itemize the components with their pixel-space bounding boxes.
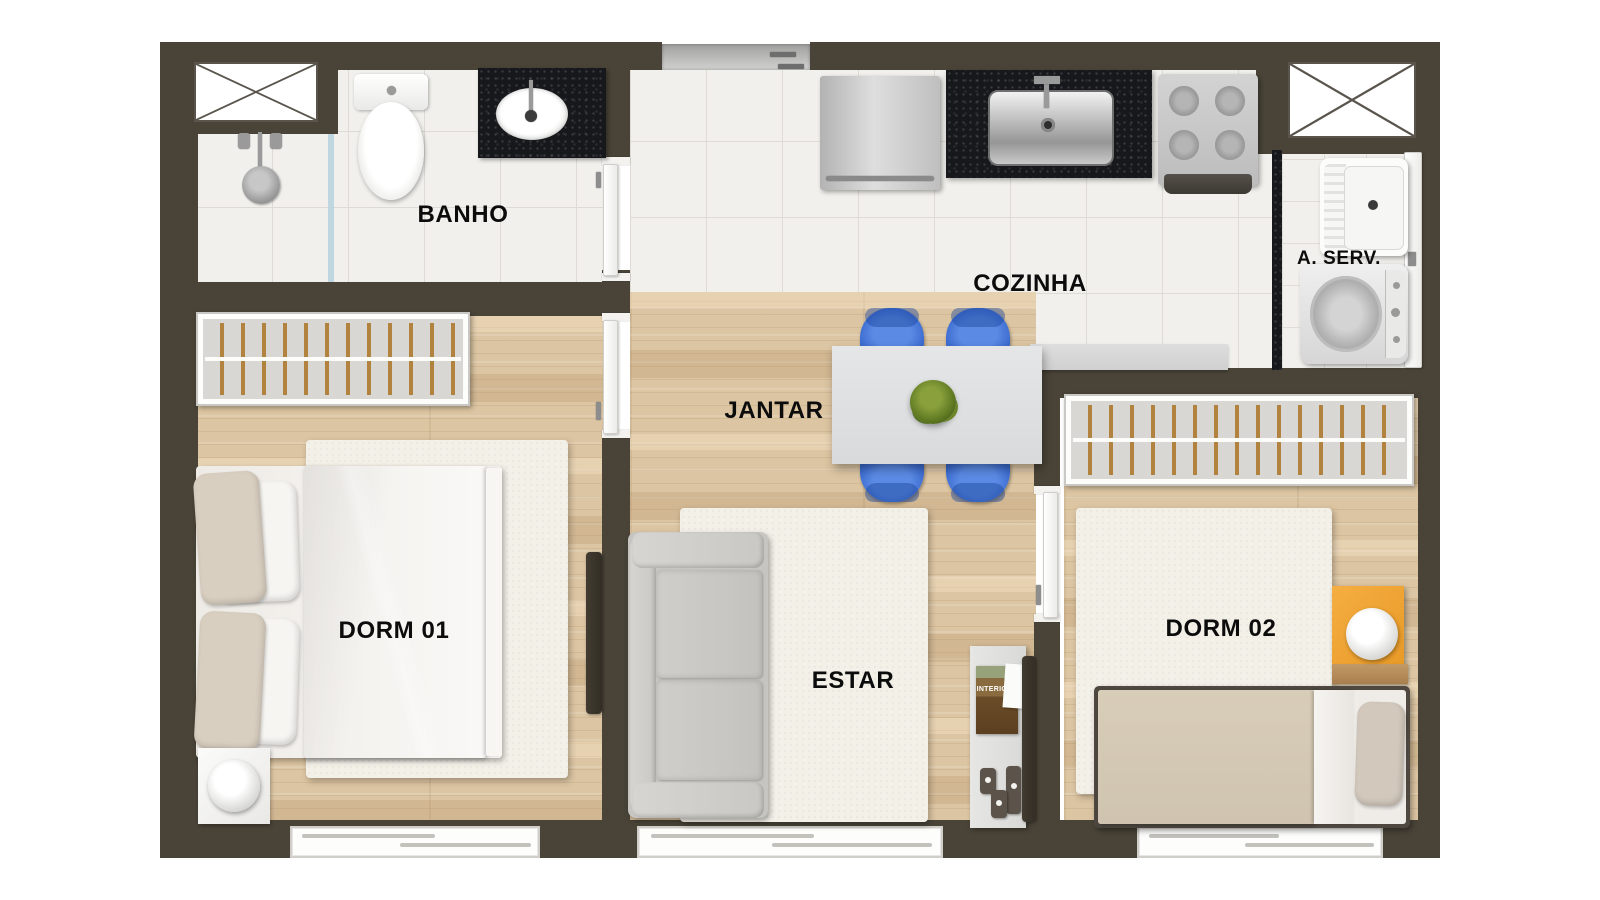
bedroom1-tv — [586, 552, 602, 714]
bathroom-door-handle — [596, 172, 601, 188]
refrigerator — [820, 76, 940, 190]
sofa-armrest-top — [632, 532, 764, 568]
entry-door-handle-2 — [778, 64, 804, 69]
laundry-tub — [1320, 158, 1408, 256]
bedroom2-nightstand-shelf — [1332, 664, 1408, 684]
wall-top-right — [810, 42, 1256, 70]
floor-plan: INTERIORS BANHO COZINHA A. SERV. JANTAR … — [0, 0, 1600, 900]
sofa-cushion-1 — [656, 570, 762, 678]
living-tv — [1022, 656, 1036, 822]
washing-machine — [1300, 264, 1408, 364]
service-window — [1288, 62, 1416, 138]
shower-head — [242, 166, 280, 204]
bedroom2-door — [1043, 492, 1058, 618]
table-plant — [910, 380, 956, 424]
shower-screen — [328, 134, 334, 282]
bathroom-window — [194, 62, 318, 122]
wall-hall-upper — [602, 42, 630, 164]
bedroom1-door — [603, 320, 618, 434]
bedroom1-pillow-beige-1 — [192, 470, 267, 606]
bedroom2-wardrobe — [1064, 394, 1414, 486]
entry-door-handle — [770, 52, 796, 57]
shower-valve-left — [238, 133, 250, 149]
bedroom1-window — [290, 826, 540, 858]
wall-dorm1-estar — [602, 432, 630, 822]
kitchen-service-divider — [1272, 150, 1282, 370]
kitchen-side-counter — [1030, 344, 1228, 370]
label-cozinha: COZINHA — [973, 270, 1087, 298]
bedroom1-lamp — [208, 760, 260, 812]
sofa-backrest — [630, 538, 656, 812]
sofa-armrest-bottom — [632, 782, 764, 818]
bedroom2-pillow — [1354, 701, 1406, 807]
bathroom-faucet — [529, 80, 533, 114]
bedroom1-wardrobe — [196, 312, 470, 406]
toilet-bowl — [358, 102, 424, 200]
wall-estar-dorm2-lower — [1034, 620, 1060, 822]
bathroom-door — [603, 164, 618, 276]
wall-left — [160, 42, 198, 858]
label-a-serv: A. SERV. — [1297, 248, 1381, 270]
wall-bathroom-south — [160, 282, 630, 316]
living-window — [637, 826, 943, 858]
label-dorm02: DORM 02 — [1166, 615, 1277, 643]
toilet-flush-button — [387, 86, 396, 95]
bedroom1-pillow-beige-2 — [193, 610, 266, 751]
service-door-handle — [1408, 252, 1416, 266]
bedroom1-blanket — [304, 466, 486, 758]
bedroom2-window — [1137, 826, 1383, 858]
label-jantar: JANTAR — [724, 397, 823, 425]
bedroom2-blanket — [1098, 690, 1314, 824]
refrigerator-handle — [826, 176, 934, 181]
remote-3 — [991, 790, 1007, 818]
shower-valve-right — [270, 133, 282, 149]
bedroom1-door-handle — [596, 402, 601, 420]
sofa-cushion-2 — [656, 680, 762, 780]
label-estar: ESTAR — [812, 667, 895, 695]
stove — [1158, 74, 1258, 186]
kitchen-sink-drain — [1041, 118, 1055, 132]
bathroom-faucet-spout — [525, 110, 537, 122]
bedroom2-door-handle — [1036, 585, 1041, 605]
kitchen-faucet-base — [1034, 76, 1060, 84]
bedroom2-blanket-fold — [1314, 690, 1354, 824]
bedroom2-lamp — [1346, 608, 1398, 660]
remote-2 — [1006, 766, 1021, 814]
label-dorm01: DORM 01 — [339, 617, 450, 645]
label-banho: BANHO — [418, 201, 509, 229]
bedroom1-blanket-fold — [486, 468, 502, 756]
